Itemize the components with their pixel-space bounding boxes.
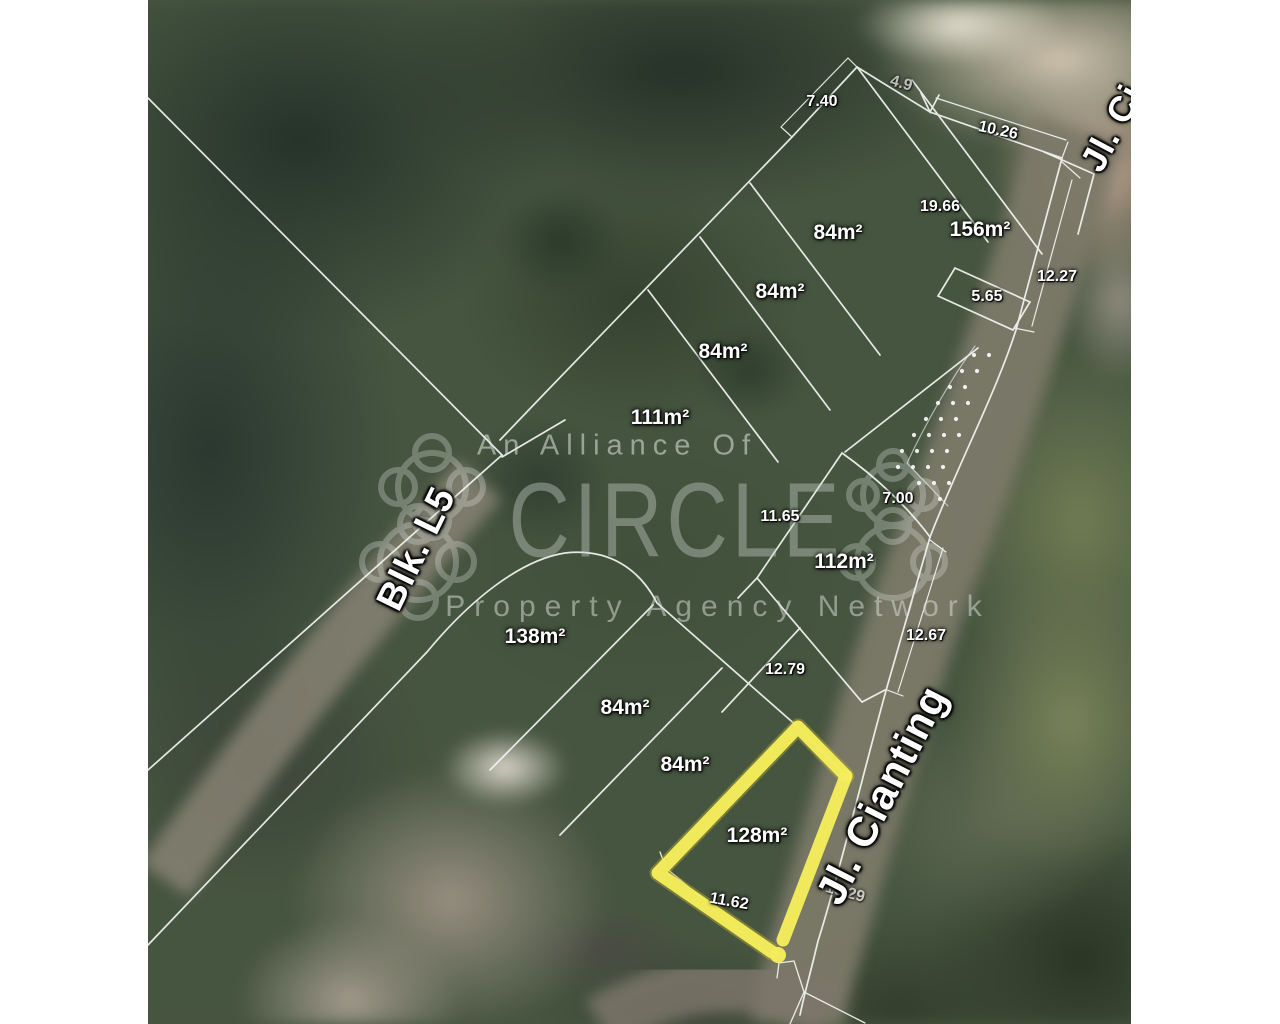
labels-layer: 84m²156m²84m²84m²111m²112m²138m²84m²84m²… (148, 0, 1131, 1024)
area-label: 84m² (813, 221, 862, 245)
area-label: 84m² (660, 753, 709, 777)
dimension-label: 4.9 (888, 72, 914, 95)
dimension-label: 7.00 (882, 490, 913, 508)
dimension-label: 12.79 (765, 661, 805, 679)
dimension-label: 11.65 (760, 508, 799, 526)
dimension-label: 11.62 (708, 890, 750, 915)
area-label: 84m² (698, 340, 747, 364)
street-label: Blk. L5 (369, 480, 465, 617)
area-label: 128m² (727, 824, 788, 848)
dimension-label: 7.40 (806, 93, 837, 111)
satellite-photo: An Alliance Of CIRCLE Property Agency Ne… (148, 0, 1131, 1024)
dimension-label: 12.67 (906, 627, 946, 645)
dimension-label: 12.27 (1037, 268, 1077, 286)
area-label: 84m² (755, 280, 804, 304)
street-label: Jl. Cianting (807, 678, 958, 912)
area-label: 112m² (814, 550, 874, 574)
dimension-label: 5.65 (971, 288, 1002, 306)
map-canvas: An Alliance Of CIRCLE Property Agency Ne… (0, 0, 1280, 1024)
street-label: Jl. Ci (1072, 78, 1131, 179)
area-label: 138m² (505, 625, 566, 649)
area-label: 156m² (950, 218, 1011, 242)
dimension-label: 10.26 (977, 118, 1020, 144)
area-label: 84m² (600, 696, 649, 720)
area-label: 111m² (631, 406, 689, 430)
dimension-label: 19.66 (920, 198, 960, 216)
